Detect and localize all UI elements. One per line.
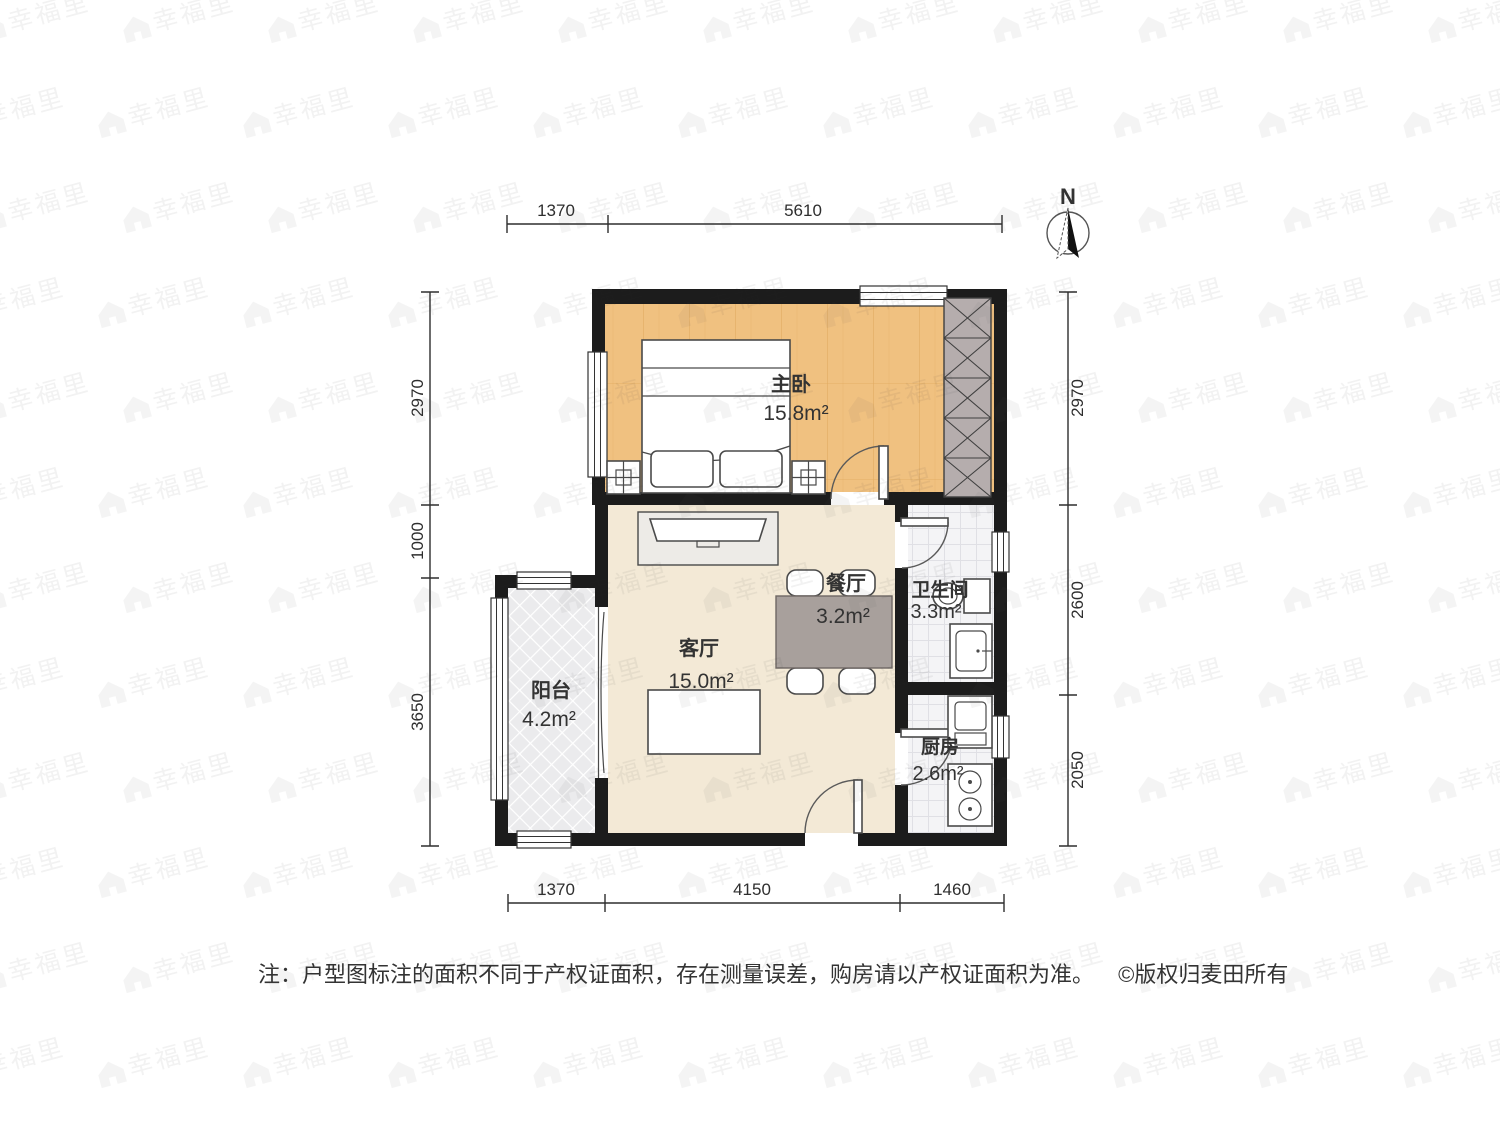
house-icon <box>411 13 442 43</box>
watermark-text: 幸福里 <box>1310 938 1398 987</box>
watermark-text: 幸福里 <box>560 83 648 132</box>
balcony-bottom-window <box>517 831 571 848</box>
house-icon <box>0 963 7 993</box>
watermark-unit: 幸福里 <box>95 273 213 330</box>
watermark-text: 幸福里 <box>705 1033 793 1082</box>
watermark-text: 幸福里 <box>1140 463 1228 512</box>
watermark-text: 幸福里 <box>1310 0 1398 37</box>
watermark-text: 幸福里 <box>1140 83 1228 132</box>
watermark-text: 幸福里 <box>1455 368 1500 417</box>
house-icon <box>1136 773 1167 803</box>
watermark-text: 幸福里 <box>270 1033 358 1082</box>
watermark-text: 幸福里 <box>1020 368 1108 417</box>
watermark-text: 幸福里 <box>0 273 68 322</box>
house-icon <box>1111 868 1142 898</box>
watermark-text: 幸福里 <box>1165 748 1253 797</box>
watermark-unit: 幸福里 <box>1280 938 1398 995</box>
house-icon <box>846 203 877 233</box>
watermark-unit: 幸福里 <box>120 178 238 235</box>
house-icon <box>266 773 297 803</box>
watermark-text: 幸福里 <box>1165 558 1253 607</box>
watermark-unit: 幸福里 <box>265 558 383 615</box>
watermark-text: 幸福里 <box>1020 748 1108 797</box>
watermark-unit: 幸福里 <box>1280 0 1398 45</box>
watermark-unit: 幸福里 <box>95 653 213 710</box>
house-icon <box>1426 963 1457 993</box>
watermark-text: 幸福里 <box>5 178 93 227</box>
house-icon <box>0 773 7 803</box>
watermark-unit: 幸福里 <box>1425 558 1500 615</box>
house-icon <box>556 13 587 43</box>
watermark-text: 幸福里 <box>295 558 383 607</box>
watermark-unit: 幸福里 <box>1110 463 1228 520</box>
house-icon <box>676 1058 707 1088</box>
house-icon <box>266 13 297 43</box>
watermark-unit: 幸福里 <box>990 368 1108 425</box>
house-icon <box>1401 678 1432 708</box>
watermark-text: 幸福里 <box>995 1033 1083 1082</box>
watermark-text: 幸福里 <box>850 1033 938 1082</box>
house-icon <box>1426 203 1457 233</box>
watermark-text: 幸福里 <box>1165 368 1253 417</box>
floor-plan-canvas: 主卧 15.8m² 客厅 15.0m² 餐厅 3.2m² 卫生间 3.3m² 阳… <box>0 0 1500 1125</box>
watermark-text: 幸福里 <box>5 368 93 417</box>
house-icon <box>96 868 127 898</box>
watermark-text: 幸福里 <box>875 0 963 37</box>
watermark-text: 幸福里 <box>1165 178 1253 227</box>
watermark-unit: 幸福里 <box>990 0 1108 45</box>
house-icon <box>121 13 152 43</box>
watermark-unit: 幸福里 <box>240 843 358 900</box>
watermark-unit: 幸福里 <box>0 748 93 805</box>
watermark-text: 幸福里 <box>125 653 213 702</box>
watermark-text: 幸福里 <box>1165 0 1253 37</box>
watermark-unit: 幸福里 <box>265 368 383 425</box>
watermark-unit: 幸福里 <box>675 1033 793 1090</box>
watermark-text: 幸福里 <box>1285 83 1373 132</box>
watermark-unit: 幸福里 <box>410 0 528 45</box>
watermark-unit: 幸福里 <box>530 83 648 140</box>
house-icon <box>0 583 7 613</box>
watermark-unit: 幸福里 <box>120 558 238 615</box>
house-icon <box>1111 678 1142 708</box>
house-icon <box>386 868 417 898</box>
watermark-text: 幸福里 <box>1430 273 1500 322</box>
watermark-unit: 幸福里 <box>385 463 503 520</box>
watermark-text: 幸福里 <box>1455 178 1500 227</box>
house-icon <box>1281 13 1312 43</box>
house-icon <box>991 13 1022 43</box>
watermark-unit: 幸福里 <box>845 0 963 45</box>
watermark-text: 幸福里 <box>1285 653 1373 702</box>
house-icon <box>1401 298 1432 328</box>
nightstand-icon <box>792 461 825 494</box>
house-icon <box>386 298 417 328</box>
house-icon <box>1111 1058 1142 1088</box>
watermark-text: 幸福里 <box>150 0 238 37</box>
house-icon <box>1111 488 1142 518</box>
house-icon <box>556 393 587 423</box>
watermark-unit: 幸福里 <box>95 83 213 140</box>
house-icon <box>1136 583 1167 613</box>
watermark-unit: 幸福里 <box>820 83 938 140</box>
watermark-text: 幸福里 <box>995 83 1083 132</box>
watermark-unit: 幸福里 <box>240 463 358 520</box>
house-icon <box>96 298 127 328</box>
house-icon <box>1256 488 1287 518</box>
watermark-unit: 幸福里 <box>1135 368 1253 425</box>
house-icon <box>411 203 442 233</box>
house-icon <box>241 868 272 898</box>
house-icon <box>96 1058 127 1088</box>
watermark-unit: 幸福里 <box>0 368 93 425</box>
watermark-unit: 幸福里 <box>820 1033 938 1090</box>
house-icon <box>266 583 297 613</box>
house-icon <box>821 1058 852 1088</box>
watermark-unit: 幸福里 <box>385 1033 503 1090</box>
watermark-text: 幸福里 <box>270 843 358 892</box>
watermark-unit: 幸福里 <box>95 843 213 900</box>
watermark-text: 幸福里 <box>0 1033 68 1082</box>
watermark-unit: 幸福里 <box>120 938 238 995</box>
watermark-text: 幸福里 <box>150 368 238 417</box>
house-icon <box>386 108 417 138</box>
watermark-text: 幸福里 <box>295 748 383 797</box>
watermark-text: 幸福里 <box>0 83 68 132</box>
watermark-text: 幸福里 <box>1310 368 1398 417</box>
watermark-unit: 幸福里 <box>1110 843 1228 900</box>
watermark-unit: 幸福里 <box>95 463 213 520</box>
house-icon <box>1281 203 1312 233</box>
house-icon <box>121 393 152 423</box>
watermark-text: 幸福里 <box>415 1033 503 1082</box>
bathroom-window <box>992 532 1009 572</box>
watermark-unit: 幸福里 <box>0 178 93 235</box>
dining-chair <box>787 668 823 694</box>
watermark-unit: 幸福里 <box>120 748 238 805</box>
watermark-unit: 幸福里 <box>265 748 383 805</box>
house-icon <box>1136 393 1167 423</box>
house-icon <box>241 1058 272 1088</box>
watermark-unit: 幸福里 <box>120 0 238 45</box>
house-icon <box>531 1058 562 1088</box>
house-icon <box>386 488 417 518</box>
watermark-text: 幸福里 <box>995 843 1083 892</box>
watermark-text: 幸福里 <box>1430 843 1500 892</box>
watermark-text: 幸福里 <box>150 938 238 987</box>
watermark-unit: 幸福里 <box>1135 0 1253 45</box>
watermark-unit: 幸福里 <box>1135 748 1253 805</box>
watermark-text: 幸福里 <box>125 463 213 512</box>
watermark-unit: 幸福里 <box>1280 368 1398 425</box>
house-icon <box>701 203 732 233</box>
dimension-left: 2970 1000 3650 <box>408 292 439 846</box>
watermark-unit: 幸福里 <box>1255 843 1373 900</box>
watermark-unit: 幸福里 <box>1400 273 1500 330</box>
watermark-unit: 幸福里 <box>385 83 503 140</box>
watermark-unit: 幸福里 <box>385 273 503 330</box>
watermark-text: 幸福里 <box>1430 653 1500 702</box>
house-icon <box>1401 108 1432 138</box>
dim-label: 1000 <box>408 522 427 560</box>
watermark-text: 幸福里 <box>270 463 358 512</box>
balcony-area: 4.2m² <box>522 708 576 731</box>
watermark-text: 幸福里 <box>1310 178 1398 227</box>
watermark-text: 幸福里 <box>705 83 793 132</box>
watermark-text: 幸福里 <box>415 273 503 322</box>
watermark-text: 幸福里 <box>125 843 213 892</box>
wall-segment <box>895 785 908 846</box>
watermark-text: 幸福里 <box>1285 273 1373 322</box>
house-icon <box>0 393 7 423</box>
watermark-unit: 幸福里 <box>1110 1033 1228 1090</box>
house-icon <box>266 393 297 423</box>
watermark-text: 幸福里 <box>270 273 358 322</box>
watermark-unit: 幸福里 <box>700 0 818 45</box>
dim-label: 1460 <box>933 880 971 899</box>
house-icon <box>241 298 272 328</box>
watermark-unit: 幸福里 <box>1425 368 1500 425</box>
house-icon <box>1256 108 1287 138</box>
watermark-text: 幸福里 <box>270 653 358 702</box>
watermark-text: 幸福里 <box>1455 938 1500 987</box>
house-icon <box>241 108 272 138</box>
watermark-text: 幸福里 <box>415 653 503 702</box>
sink-icon <box>950 624 992 678</box>
watermark-text: 幸福里 <box>415 843 503 892</box>
house-icon <box>121 203 152 233</box>
wall-segment <box>495 833 517 846</box>
bathroom-area: 3.3m² <box>910 601 961 623</box>
watermark-unit: 幸福里 <box>845 178 963 235</box>
watermark-text: 幸福里 <box>125 1033 213 1082</box>
watermark-text: 幸福里 <box>1140 653 1228 702</box>
house-icon <box>1281 583 1312 613</box>
watermark-text: 幸福里 <box>560 843 648 892</box>
dining-area: 3.2m² <box>816 605 870 628</box>
house-icon <box>966 1058 997 1088</box>
watermark-unit: 幸福里 <box>265 0 383 45</box>
watermark-text: 幸福里 <box>1430 1033 1500 1082</box>
watermark-text: 幸福里 <box>150 558 238 607</box>
watermark-unit: 幸福里 <box>1110 653 1228 710</box>
watermark-unit: 幸福里 <box>1110 273 1228 330</box>
watermark-unit: 幸福里 <box>1255 273 1373 330</box>
house-icon <box>1111 108 1142 138</box>
tv-icon <box>650 519 766 541</box>
watermark-unit: 幸福里 <box>1280 558 1398 615</box>
watermark-unit: 幸福里 <box>675 83 793 140</box>
watermark-unit: 幸福里 <box>1400 1033 1500 1090</box>
watermark-text: 幸福里 <box>1140 1033 1228 1082</box>
watermark-text: 幸福里 <box>1310 558 1398 607</box>
watermark-text: 幸福里 <box>1455 558 1500 607</box>
watermark-unit: 幸福里 <box>1280 748 1398 805</box>
watermark-text: 幸福里 <box>415 83 503 132</box>
watermark-text: 幸福里 <box>1310 748 1398 797</box>
house-icon <box>1426 13 1457 43</box>
house-icon <box>1111 298 1142 328</box>
watermark-unit: 幸福里 <box>240 83 358 140</box>
watermark-unit: 幸福里 <box>1135 558 1253 615</box>
watermark-unit: 幸福里 <box>410 178 528 235</box>
watermark-unit: 幸福里 <box>0 1033 68 1090</box>
living-label: 客厅 <box>678 636 719 660</box>
watermark-text: 幸福里 <box>0 653 68 702</box>
watermark-unit: 幸福里 <box>0 558 93 615</box>
watermark-text: 幸福里 <box>1285 463 1373 512</box>
watermark-unit: 幸福里 <box>95 1033 213 1090</box>
watermark-text: 幸福里 <box>1430 463 1500 512</box>
watermark-text: 幸福里 <box>0 843 68 892</box>
house-icon <box>531 298 562 328</box>
house-icon <box>701 13 732 43</box>
watermark-text: 幸福里 <box>1430 83 1500 132</box>
watermark-unit: 幸福里 <box>240 1033 358 1090</box>
house-icon <box>1426 393 1457 423</box>
house-icon <box>96 488 127 518</box>
watermark-unit: 幸福里 <box>1425 938 1500 995</box>
house-icon <box>386 1058 417 1088</box>
watermark-unit: 幸福里 <box>0 843 68 900</box>
house-icon <box>411 583 442 613</box>
watermark-text: 幸福里 <box>5 748 93 797</box>
watermark-unit: 幸福里 <box>530 1033 648 1090</box>
bathroom-door-leaf <box>901 518 948 526</box>
watermark-unit: 幸福里 <box>1425 748 1500 805</box>
watermark-text: 幸福里 <box>585 0 673 37</box>
watermark-text: 幸福里 <box>125 273 213 322</box>
watermark-unit: 幸福里 <box>820 843 938 900</box>
house-icon <box>121 583 152 613</box>
wall-segment <box>858 833 1007 846</box>
house-icon <box>1256 868 1287 898</box>
house-icon <box>991 203 1022 233</box>
watermark-unit: 幸福里 <box>1425 178 1500 235</box>
house-icon <box>821 868 852 898</box>
house-icon <box>676 868 707 898</box>
watermark-text: 幸福里 <box>1140 273 1228 322</box>
watermark-text: 幸福里 <box>5 0 93 37</box>
house-icon <box>1426 583 1457 613</box>
house-icon <box>411 773 442 803</box>
house-icon <box>1281 393 1312 423</box>
watermark-text: 幸福里 <box>1285 843 1373 892</box>
watermark-text: 幸福里 <box>270 83 358 132</box>
watermark-text: 幸福里 <box>150 748 238 797</box>
watermark-text: 幸福里 <box>1285 1033 1373 1082</box>
watermark-text: 幸福里 <box>875 178 963 227</box>
house-icon <box>1401 488 1432 518</box>
house-icon <box>1426 773 1457 803</box>
pillow <box>651 451 713 487</box>
house-icon <box>821 108 852 138</box>
watermark-unit: 幸福里 <box>1135 178 1253 235</box>
watermark-unit: 幸福里 <box>0 273 68 330</box>
house-icon <box>1401 1058 1432 1088</box>
house-icon <box>531 488 562 518</box>
watermark-unit: 幸福里 <box>0 83 68 140</box>
watermark-text: 幸福里 <box>440 368 528 417</box>
house-icon <box>241 488 272 518</box>
watermark-text: 幸福里 <box>150 178 238 227</box>
house-icon <box>96 678 127 708</box>
watermark-unit: 幸福里 <box>1110 83 1228 140</box>
wall-segment <box>595 833 805 846</box>
watermark-unit: 幸福里 <box>240 273 358 330</box>
watermark-unit: 幸福里 <box>700 178 818 235</box>
watermark-unit: 幸福里 <box>0 653 68 710</box>
watermark-unit: 幸福里 <box>1400 463 1500 520</box>
watermark-text: 幸福里 <box>5 558 93 607</box>
watermark-text: 幸福里 <box>295 0 383 37</box>
house-icon <box>1256 678 1287 708</box>
watermark-unit: 幸福里 <box>1255 653 1373 710</box>
watermark-unit: 幸福里 <box>1255 463 1373 520</box>
house-icon <box>121 963 152 993</box>
house-icon <box>1136 13 1167 43</box>
watermark-unit: 幸福里 <box>965 83 1083 140</box>
watermark-unit: 幸福里 <box>965 843 1083 900</box>
watermark-text: 幸福里 <box>850 843 938 892</box>
watermark-text: 幸福里 <box>0 463 68 512</box>
watermark-unit: 幸福里 <box>265 178 383 235</box>
house-icon <box>1136 203 1167 233</box>
watermark-unit: 幸福里 <box>385 843 503 900</box>
house-icon <box>1256 298 1287 328</box>
watermark-text: 幸福里 <box>850 83 938 132</box>
house-icon <box>0 203 7 233</box>
watermark-unit: 幸福里 <box>1400 653 1500 710</box>
watermark-text: 幸福里 <box>125 83 213 132</box>
watermark-text: 幸福里 <box>415 463 503 512</box>
house-icon <box>676 108 707 138</box>
watermark-unit: 幸福里 <box>240 653 358 710</box>
watermark-text: 幸福里 <box>1020 0 1108 37</box>
kitchen-window <box>992 716 1009 758</box>
watermark-text: 幸福里 <box>1020 558 1108 607</box>
watermark-unit: 幸福里 <box>965 1033 1083 1090</box>
house-icon <box>531 108 562 138</box>
watermark-unit: 幸福里 <box>120 368 238 425</box>
house-icon <box>1281 773 1312 803</box>
watermark-unit: 幸福里 <box>990 178 1108 235</box>
kitchen-door-leaf <box>901 729 953 737</box>
watermark-unit: 幸福里 <box>1255 83 1373 140</box>
watermark-text: 幸福里 <box>995 273 1083 322</box>
watermark-unit: 幸福里 <box>410 368 528 425</box>
bathroom-door-opening <box>895 522 908 568</box>
watermark-unit: 幸福里 <box>1425 0 1500 45</box>
watermark-unit: 幸福里 <box>1280 178 1398 235</box>
house-icon <box>96 108 127 138</box>
watermark-unit: 幸福里 <box>0 463 68 520</box>
house-icon <box>0 13 7 43</box>
watermark-unit: 幸福里 <box>385 653 503 710</box>
watermark-text: 幸福里 <box>1455 748 1500 797</box>
watermark-text: 幸福里 <box>585 178 673 227</box>
house-icon <box>966 108 997 138</box>
watermark-text: 幸福里 <box>5 938 93 987</box>
house-icon <box>266 203 297 233</box>
watermark-unit: 幸福里 <box>0 938 93 995</box>
entry-door-opening <box>805 833 858 846</box>
watermark-text: 幸福里 <box>295 178 383 227</box>
watermark-text: 幸福里 <box>730 0 818 37</box>
wall-segment <box>571 833 595 846</box>
watermark-text: 幸福里 <box>1140 843 1228 892</box>
watermark-unit: 幸福里 <box>0 0 93 45</box>
